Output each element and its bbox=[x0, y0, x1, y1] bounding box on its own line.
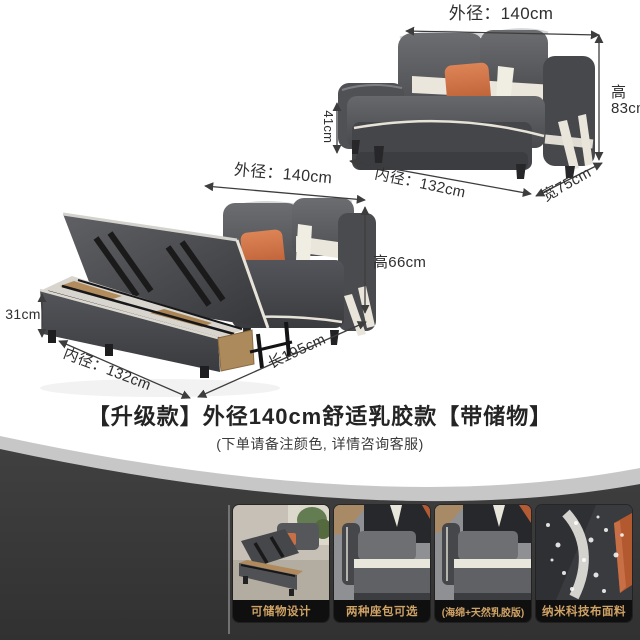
feature-caption-nano-fabric: 纳米科技布面料 bbox=[536, 600, 632, 622]
thumbnail-strip-divider bbox=[228, 505, 230, 634]
feature-caption-latex-version: (海绵+天然乳胶版) bbox=[435, 600, 531, 622]
dim-label-open-box-height: 31cm bbox=[3, 307, 43, 322]
box-foot bbox=[105, 344, 113, 356]
sofa-front-illustration bbox=[338, 30, 595, 179]
feature-caption-seat-options: 两种座包可选 bbox=[334, 600, 430, 622]
feature-card-storage[interactable]: 可储物设计 bbox=[233, 505, 329, 622]
feature-card-latex-version[interactable]: (海绵+天然乳胶版) bbox=[435, 505, 531, 622]
dim-label-top-height-cn: 高 bbox=[611, 85, 640, 101]
product-title: 【升级款】外径140cm舒适乳胶款【带储物】 bbox=[0, 399, 640, 431]
back-strap-vertical bbox=[296, 224, 312, 262]
floor-shadow bbox=[40, 379, 280, 397]
box-foot bbox=[200, 366, 209, 378]
product-detail-image: 外径：140cm 高 83cm 41cm 内径：132cm 宽75cm 外径：1… bbox=[0, 0, 640, 640]
box-foot bbox=[48, 330, 56, 343]
dim-label-top-height: 高 83cm bbox=[611, 85, 640, 117]
feature-caption-storage: 可储物设计 bbox=[233, 600, 329, 622]
feature-card-seat-options[interactable]: 两种座包可选 bbox=[334, 505, 430, 622]
feature-thumb-latex-version bbox=[435, 505, 531, 600]
product-subtitle: (下单请备注颜色, 详情咨询客服) bbox=[0, 434, 640, 454]
dim-label-top-seat-height: 41cm bbox=[321, 108, 335, 146]
leg bbox=[516, 164, 526, 179]
feature-thumb-nano-fabric bbox=[536, 505, 632, 600]
feature-thumb-seat-options bbox=[334, 505, 430, 600]
dim-label-top-outer-width: 外径：140cm bbox=[439, 5, 563, 23]
dim-label-open-height: 高66cm bbox=[373, 255, 429, 271]
dim-line-open-outer bbox=[205, 186, 365, 200]
feature-thumb-storage bbox=[233, 505, 329, 600]
dim-label-top-height-value: 83cm bbox=[611, 101, 640, 117]
feature-card-nano-fabric[interactable]: 纳米科技布面料 bbox=[536, 505, 632, 622]
